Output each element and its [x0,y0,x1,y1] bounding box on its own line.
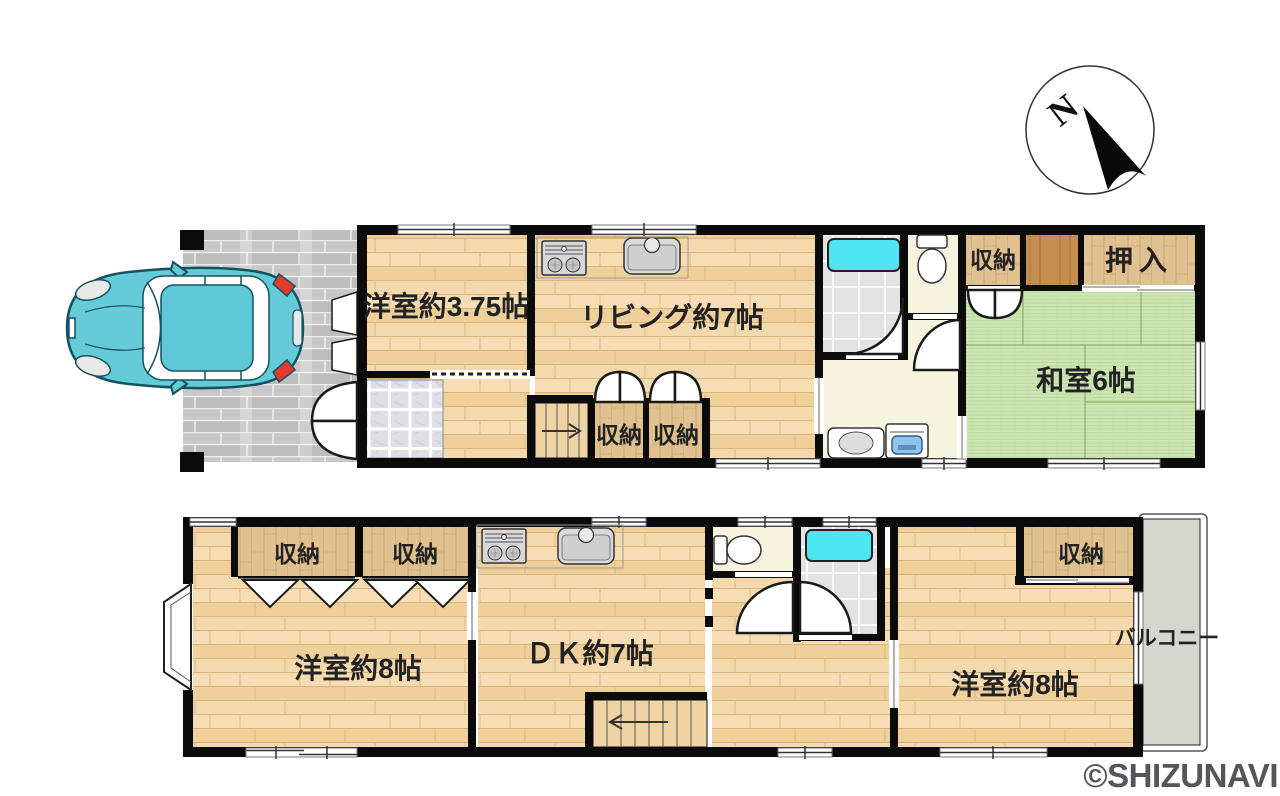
storage-right-label-1f: 収納 [970,247,1016,273]
dark-storage-cell-1f [1026,233,1080,288]
bathtub-icon-2f [806,530,872,561]
stairs-2f [593,700,707,747]
storage-b-label-2f: 収納 [392,541,438,567]
room-west8-left-label: 洋室約8帖 [294,652,422,684]
washbasin-icon [828,428,884,458]
storage-right-label-2f: 収納 [1058,541,1104,567]
watermark: ©SHIZUNAVI [1083,757,1278,794]
casement-window-leaf [332,338,357,375]
floor2-plan: 収納 収納 洋室約8帖 ＤＫ約7帖 収納 洋室約8帖 バルコニー [164,514,1219,759]
stove-icon-1f [542,241,586,275]
tatami-room-label: 和室6帖 [1036,364,1136,396]
casement-window-leaf [332,292,357,335]
floorplan-canvas: N [0,0,1280,796]
living-label: リビング約7帖 [580,301,764,333]
room-west375-label: 洋室約3.75帖 [363,290,530,322]
sink-icon-2f [558,528,614,565]
stove-icon-2f [482,529,526,563]
storage-a-label-2f: 収納 [274,541,320,567]
toilet-icon-2f [714,536,761,564]
oshiire-label: 押入 [1105,244,1173,276]
stairs-1f [535,403,588,458]
genkan-tile-floor [362,380,443,458]
compass: N [1026,66,1154,194]
balcony-label: バルコニー [1115,627,1220,650]
parking-post [180,452,204,472]
bathtub-icon-1f [828,239,900,271]
storage-b-label-1f: 収納 [653,422,699,448]
floorplan-page: N [0,0,1280,796]
car-icon [67,262,303,394]
dk-label: ＤＫ約7帖 [526,637,654,669]
sink-icon-1f [624,238,680,275]
compass-circle [1026,66,1154,194]
bay-window [164,584,191,690]
storage-a-label-1f: 収納 [596,422,642,448]
parking-post [180,230,204,250]
washing-machine-icon [886,424,928,458]
floor1-plan: 洋室約3.75帖 リビング約7帖 収納 収納 収納 押入 和室6帖 [67,223,1205,472]
room-west8-right-label: 洋室約8帖 [951,668,1079,700]
toilet-icon-1f [917,235,947,283]
